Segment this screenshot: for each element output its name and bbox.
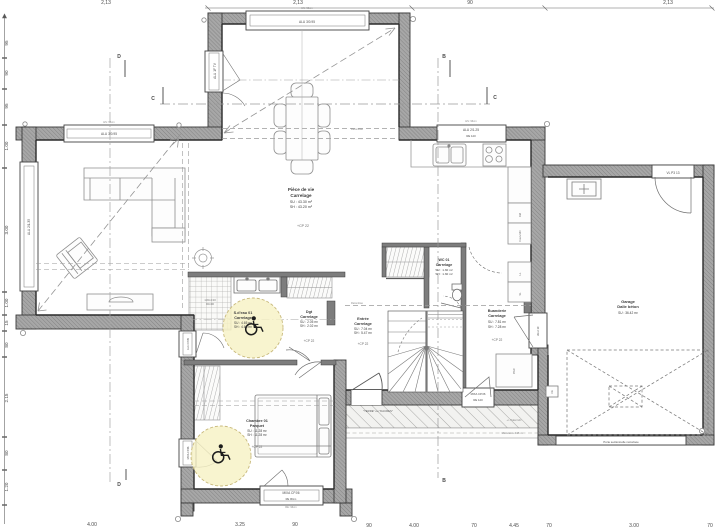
svg-text:90x90: 90x90 (206, 302, 215, 306)
svg-text:+CP 22: +CP 22 (492, 338, 503, 342)
svg-text:90: 90 (366, 523, 372, 529)
svg-text:Dalle béton: Dalle béton (617, 304, 639, 309)
svg-text:80: 80 (4, 450, 9, 456)
svg-text:HS: 96cm: HS: 96cm (103, 120, 114, 124)
svg-text:CE: CE (550, 390, 554, 394)
svg-text:70: 70 (546, 523, 552, 529)
svg-text:1.20: 1.20 (4, 482, 9, 491)
svg-text:70: 70 (471, 523, 477, 529)
svg-text:90: 90 (4, 70, 9, 76)
svg-text:ALU CP.05: ALU CP.05 (187, 338, 190, 350)
svg-text:2,13: 2,13 (293, 0, 303, 6)
svg-text:VL P3 13: VL P3 13 (667, 171, 680, 175)
svg-text:Retombée: Retombée (351, 127, 364, 131)
svg-text:95: 95 (4, 40, 9, 46)
svg-text:SH : 11.28 m²: SH : 11.28 m² (247, 433, 266, 437)
svg-text:ALU 2/1.35: ALU 2/1.35 (27, 219, 31, 235)
svg-text:2.15: 2.15 (4, 393, 9, 402)
svg-text:ALU 1F: ALU 1F (536, 326, 540, 336)
svg-text:1.00: 1.00 (4, 141, 9, 150)
svg-text:90: 90 (467, 0, 473, 6)
svg-text:Pièce de vie: Pièce de vie (288, 187, 315, 192)
svg-text:SU : 7.81 m²: SU : 7.81 m² (488, 320, 506, 324)
svg-text:Four+MO: Four+MO (518, 230, 522, 241)
svg-text:Carrelage: Carrelage (436, 263, 453, 267)
svg-text:RE 120: RE 120 (466, 134, 476, 138)
svg-text:B: B (442, 478, 446, 484)
svg-text:RE 120: RE 120 (473, 398, 483, 402)
svg-text:Parquet: Parquet (250, 424, 265, 428)
svg-text:Entrée: Entrée (357, 317, 369, 321)
svg-text:WC 01: WC 01 (439, 258, 450, 262)
svg-text:Dgt: Dgt (306, 310, 313, 314)
svg-text:Carrelage: Carrelage (290, 193, 312, 198)
svg-text:Montées à 2.15 m: Montées à 2.15 m (502, 431, 523, 435)
svg-text:C: C (151, 96, 155, 102)
svg-text:SH : 5.47 m²: SH : 5.47 m² (354, 331, 372, 335)
svg-text:"TERRE" ou "DACRES": "TERRE" ou "DACRES" (363, 409, 393, 413)
svg-text:SU : 36.42 m²: SU : 36.42 m² (618, 311, 638, 315)
svg-text:Carrelage: Carrelage (234, 316, 252, 320)
svg-text:80: 80 (4, 342, 9, 348)
svg-text:SH : 2.02 m²: SH : 2.02 m² (300, 324, 318, 328)
svg-text:B: B (442, 54, 446, 60)
svg-text:ALU 1F TV: ALU 1F TV (213, 62, 217, 79)
svg-text:D: D (117, 482, 121, 488)
svg-text:ALU 2/1.25: ALU 2/1.25 (463, 128, 479, 132)
svg-text:1.00: 1.00 (4, 298, 9, 307)
svg-text:2,13: 2,13 (663, 0, 673, 6)
svg-text:70: 70 (707, 523, 713, 529)
svg-text:15: 15 (4, 320, 9, 326)
svg-text:+CP 22: +CP 22 (358, 342, 369, 346)
svg-text:D: D (117, 54, 121, 60)
svg-text:HS: 96cm: HS: 96cm (465, 119, 476, 123)
svg-text:3.00: 3.00 (4, 225, 9, 234)
svg-text:95: 95 (4, 103, 9, 109)
svg-text:Chambre 01: Chambre 01 (246, 419, 268, 423)
svg-text:SH : 4.63 m²: SH : 4.63 m² (234, 325, 252, 329)
svg-text:C: C (493, 95, 497, 101)
svg-text:2,13: 2,13 (101, 0, 111, 6)
svg-text:S.d'eau 01: S.d'eau 01 (234, 311, 253, 315)
svg-text:SH : 43.20 m²: SH : 43.20 m² (290, 205, 313, 209)
svg-text:Réf: Réf (518, 213, 522, 217)
svg-text:90: 90 (292, 522, 298, 528)
svg-text:4.45: 4.45 (509, 523, 519, 529)
svg-text:Porte sectionnelle motorisée: Porte sectionnelle motorisée (603, 440, 639, 444)
svg-text:SH : 7.28 m²: SH : 7.28 m² (488, 325, 506, 329)
svg-text:3.00: 3.00 (629, 523, 639, 529)
svg-text:RE 96cm: RE 96cm (286, 497, 297, 501)
svg-text:PAC: PAC (512, 367, 516, 374)
svg-text:Buanderie: Buanderie (488, 309, 507, 313)
svg-text:SU : 43.30 m²: SU : 43.30 m² (290, 200, 313, 204)
svg-text:SH : 1.30 m²: SH : 1.30 m² (435, 272, 452, 276)
svg-text:+CP 22: +CP 22 (304, 339, 315, 343)
svg-text:SL: SL (518, 292, 522, 296)
svg-text:3.25: 3.25 (235, 522, 245, 528)
svg-text:4.00: 4.00 (409, 523, 419, 529)
svg-text:ALU 3/0.95: ALU 3/0.95 (299, 20, 315, 24)
svg-text:MIXA CP.06: MIXA CP.06 (187, 446, 190, 459)
svg-text:ALU 3/0.95: ALU 3/0.95 (101, 132, 117, 136)
svg-text:+CP 22: +CP 22 (252, 445, 263, 449)
svg-text:Carrelage: Carrelage (354, 322, 372, 326)
svg-text:+/- Palier/HC: +/- Palier/HC (507, 418, 522, 422)
svg-text:MIXA CP.06: MIXA CP.06 (471, 392, 486, 396)
svg-text:4.00: 4.00 (87, 522, 97, 528)
svg-text:MIXA CP.06: MIXA CP.06 (283, 491, 300, 495)
svg-text:+CP 22: +CP 22 (297, 224, 309, 228)
svg-text:Retombée: Retombée (351, 301, 364, 305)
svg-text:Carrelage: Carrelage (488, 314, 506, 318)
svg-text:RE: 96cm: RE: 96cm (285, 505, 296, 509)
svg-text:Carrelage: Carrelage (300, 315, 318, 319)
